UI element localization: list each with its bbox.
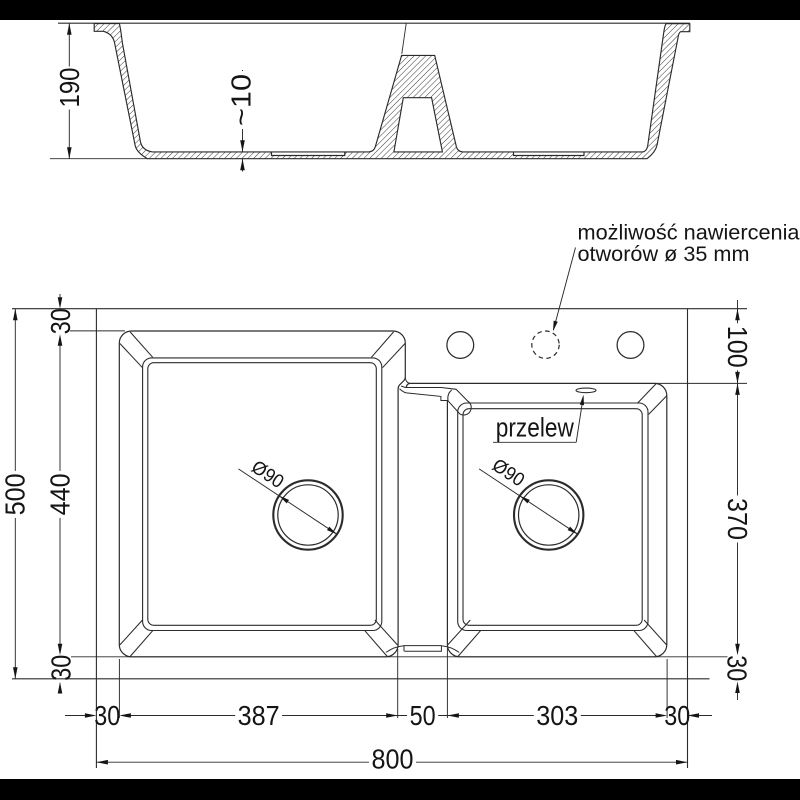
svg-text:370: 370 [722, 498, 753, 540]
svg-text:30: 30 [664, 700, 690, 731]
svg-text:~10: ~10 [225, 74, 256, 126]
svg-text:otworów ø 35 mm: otworów ø 35 mm [578, 243, 750, 266]
svg-text:100: 100 [722, 326, 753, 368]
svg-text:190: 190 [54, 68, 85, 108]
svg-text:50: 50 [410, 700, 436, 731]
svg-text:500: 500 [0, 473, 30, 515]
svg-text:800: 800 [372, 744, 414, 775]
svg-text:440: 440 [45, 473, 76, 515]
svg-text:30: 30 [722, 655, 753, 681]
svg-text:przelew: przelew [496, 412, 574, 442]
svg-text:30: 30 [46, 655, 77, 681]
svg-text:30: 30 [94, 700, 120, 731]
svg-text:możliwość nawiercenia: możliwość nawiercenia [578, 222, 800, 245]
svg-text:387: 387 [238, 700, 280, 731]
svg-text:303: 303 [536, 700, 578, 731]
svg-text:30: 30 [45, 308, 76, 334]
